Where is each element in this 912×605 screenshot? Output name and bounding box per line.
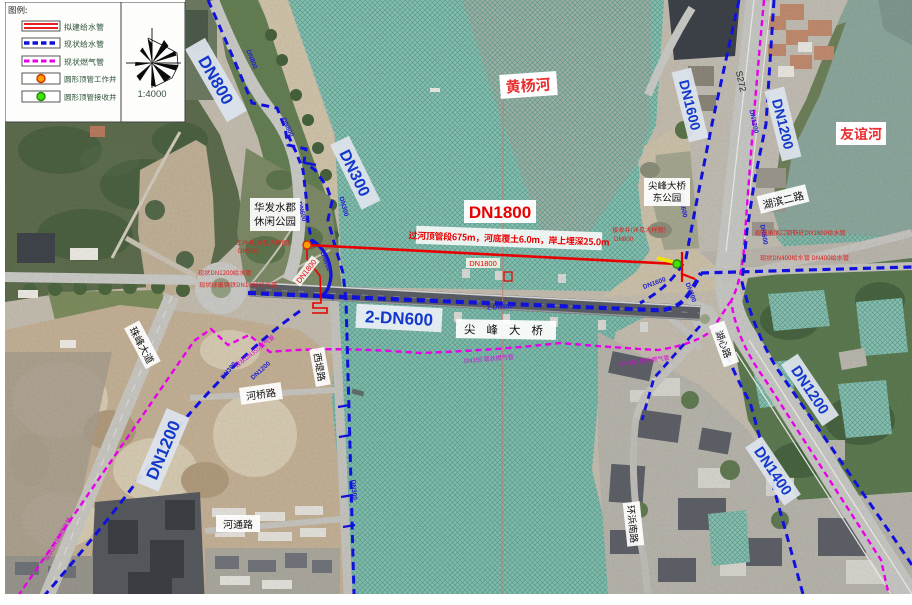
svg-text:DN1800: DN1800 xyxy=(469,203,531,222)
svg-text:DN1800: DN1800 xyxy=(469,259,497,268)
svg-text:DN800: DN800 xyxy=(614,236,634,243)
svg-text:2-DN600: 2-DN600 xyxy=(364,307,433,330)
svg-text:DN800: DN800 xyxy=(238,248,258,255)
svg-text:2-DN600: 2-DN600 xyxy=(487,303,514,311)
svg-text:1:4000: 1:4000 xyxy=(137,89,166,100)
